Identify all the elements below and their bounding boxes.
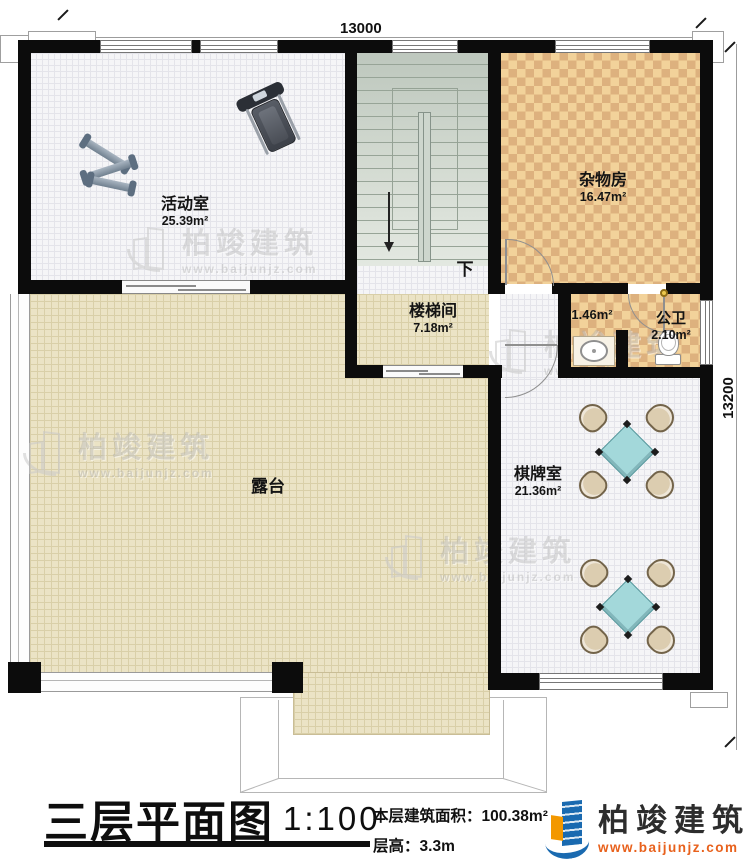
- watermark: 柏竣建筑 www.baijunjz.com: [388, 528, 576, 584]
- stair-handrail: [418, 112, 431, 262]
- wall-segment: [700, 40, 713, 300]
- dimension-line-top: [28, 37, 712, 38]
- dimension-tick: [695, 17, 706, 28]
- room-label-terrace: 露台: [228, 477, 308, 496]
- floor-plan-sheet: 13000 13200: [0, 0, 750, 867]
- wall-segment: [345, 52, 357, 378]
- wall-segment: [666, 283, 712, 294]
- wall-segment: [488, 52, 501, 294]
- wall-segment: [278, 40, 392, 53]
- watermark-brand: 柏竣建筑: [78, 424, 214, 466]
- terrace-extension-floor: [293, 672, 490, 735]
- company-logo: 柏竣建筑 www.baijunjz.com: [546, 799, 750, 859]
- terrace-railing-bottom: [30, 672, 272, 692]
- column: [8, 662, 41, 693]
- plan-scale: 1:100: [283, 800, 381, 838]
- wall-segment: [250, 280, 357, 294]
- roof-outline: [240, 697, 296, 698]
- wall-segment: [18, 40, 31, 294]
- watermark-url: www.baijunjz.com: [78, 466, 214, 480]
- column: [272, 662, 303, 693]
- title-underline: [44, 841, 370, 847]
- window: [100, 40, 192, 53]
- wall-segment: [18, 280, 122, 294]
- watermark: 柏竣建筑 www.baijunjz.com: [130, 220, 318, 276]
- wall-segment: [488, 283, 505, 294]
- floor-height-label: 层高：: [373, 838, 420, 855]
- dimension-right-label: 13200: [688, 358, 750, 438]
- sliding-door-panel: [386, 370, 428, 372]
- sliding-door-panel: [419, 373, 460, 375]
- company-logo-brand: 柏竣建筑: [598, 805, 750, 836]
- floor-height-value: 3.3m: [420, 838, 455, 855]
- roof-outline: [240, 792, 547, 793]
- wall-segment: [192, 40, 200, 53]
- dimension-tick: [57, 9, 68, 20]
- room-label-chess: 棋牌室 21.36m²: [478, 466, 598, 498]
- chess-room-door-leaf: [505, 344, 557, 346]
- dumbbell-rack: [76, 136, 138, 196]
- wall-segment: [488, 673, 539, 690]
- wall-segment: [458, 40, 555, 53]
- corner-eave-outline: [690, 692, 728, 708]
- watermark-logo-icon: [26, 429, 68, 475]
- watermark-url: www.baijunjz.com: [182, 262, 318, 276]
- roof-outline: [546, 697, 547, 793]
- window: [539, 673, 663, 690]
- stair-down-arrow: [384, 242, 394, 252]
- roof-outline: [490, 697, 547, 698]
- sink-drain: [592, 349, 596, 353]
- roof-outline: [278, 778, 504, 779]
- bathroom-door-hinge: [660, 289, 668, 297]
- storage-door-leaf: [505, 239, 507, 285]
- watermark-url: www.baijunjz.com: [440, 570, 576, 584]
- room-label-corridor: 1.46m²: [552, 308, 632, 323]
- room-label-activity: 活动室 25.39m²: [125, 196, 245, 228]
- dumbbell: [88, 175, 135, 192]
- floor-area-line: 本层建筑面积：100.38m²: [373, 804, 548, 826]
- watermark-logo-icon: [130, 225, 172, 271]
- wall-segment: [345, 365, 383, 378]
- wall-segment: [488, 378, 501, 690]
- floor-area-value: 100.38m²: [482, 808, 548, 825]
- roof-outline: [503, 700, 504, 778]
- floor-height-line: 层高：3.3m: [373, 834, 455, 856]
- stair-direction-line: [388, 192, 390, 244]
- wall-segment: [663, 673, 713, 690]
- dimension-tick: [724, 41, 735, 52]
- watermark-logo-icon: [388, 533, 430, 579]
- dimension-top-label: 13000: [340, 20, 382, 37]
- room-label-bathroom: 公卫 2.10m²: [631, 311, 711, 342]
- floor-area-label: 本层建筑面积：: [373, 808, 482, 825]
- sliding-door-panel: [126, 285, 196, 287]
- dimension-tick: [724, 736, 735, 747]
- window: [392, 40, 458, 53]
- room-label-storage: 杂物房 16.47m²: [543, 172, 663, 204]
- room-label-stairwell: 楼梯间 7.18m²: [373, 303, 493, 335]
- roof-hip-line: [503, 778, 547, 792]
- window: [555, 40, 650, 53]
- wall-segment: [463, 365, 502, 378]
- watermark: 柏竣建筑 www.baijunjz.com: [26, 424, 214, 480]
- company-logo-url: www.baijunjz.com: [598, 840, 750, 855]
- sliding-door: [383, 365, 463, 378]
- watermark-brand: 柏竣建筑: [440, 528, 576, 570]
- sliding-door-panel: [178, 289, 246, 291]
- roof-outline: [278, 700, 279, 778]
- roof-outline: [240, 697, 241, 793]
- sliding-door: [122, 280, 250, 294]
- wall-segment: [558, 294, 571, 378]
- stair-down-label: 下: [450, 260, 480, 279]
- company-logo-icon: [546, 799, 592, 859]
- window: [200, 40, 278, 53]
- wall-segment: [552, 283, 628, 294]
